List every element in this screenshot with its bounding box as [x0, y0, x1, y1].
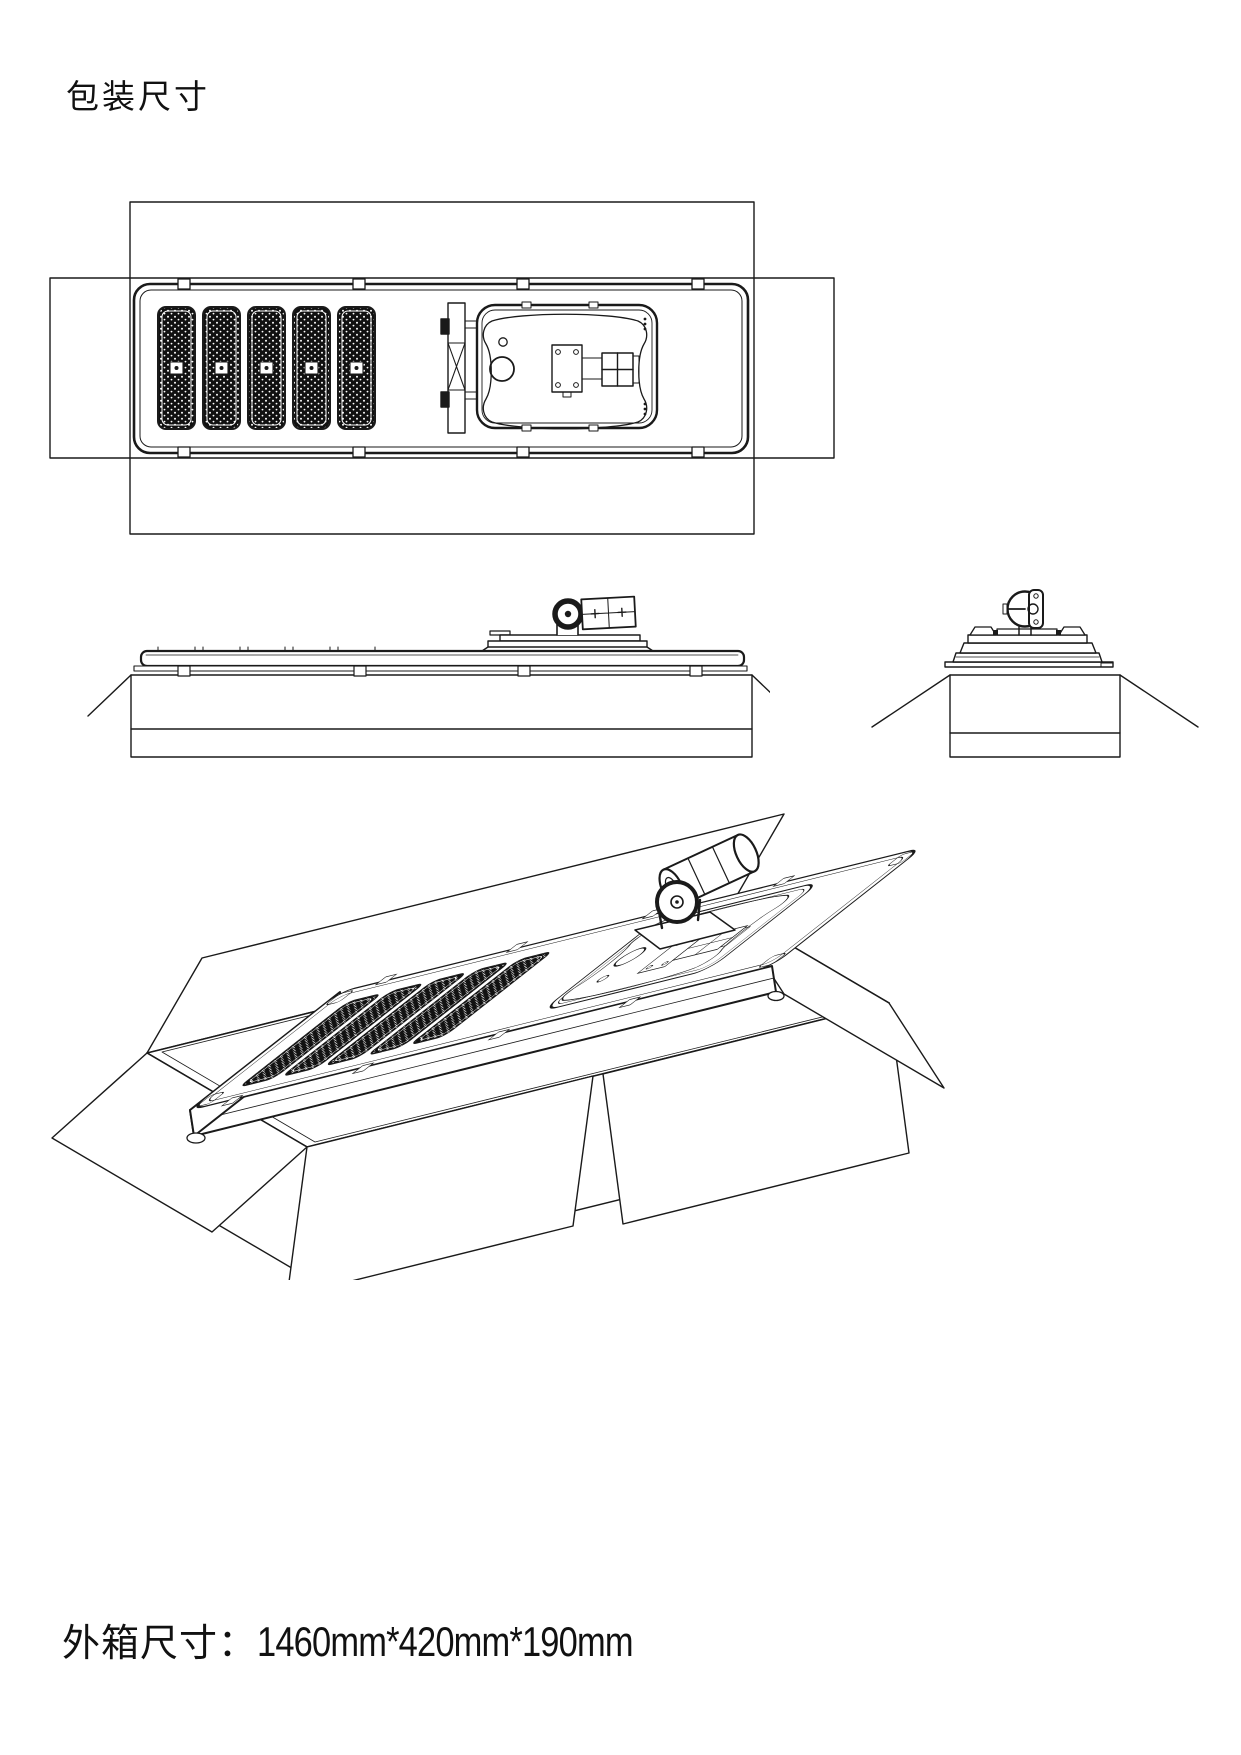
lamp-side-profile — [134, 647, 747, 676]
solar-panel — [158, 307, 195, 429]
solar-panel — [338, 307, 375, 429]
bracket-grid-plate — [581, 597, 635, 630]
solar-panel — [248, 307, 285, 429]
mount-bracket-side — [482, 597, 653, 651]
isometric-drawing — [50, 810, 950, 1280]
solar-panel — [293, 307, 330, 429]
end-view-drawing — [845, 575, 1215, 775]
lamp-end-profile — [945, 627, 1113, 667]
solar-panel — [203, 307, 240, 429]
side-view-end — [845, 575, 1215, 775]
isometric-view — [50, 810, 950, 1280]
carton-end — [872, 675, 1198, 757]
pole-clamp-side — [555, 601, 581, 627]
open-flap-left — [872, 675, 950, 727]
page-title: 包装尺寸 — [66, 70, 210, 118]
open-flap-left — [88, 675, 131, 716]
dimension-label: 外箱尺寸： — [62, 1623, 257, 1665]
pole-bracket-grid — [602, 353, 639, 386]
corner-foot — [187, 1133, 205, 1143]
corner-foot — [768, 992, 784, 1001]
open-flap-right — [1120, 675, 1198, 727]
carton-side — [88, 675, 770, 757]
mount-bracket — [477, 302, 657, 431]
page: 包装尺寸 — [0, 0, 1241, 1755]
lamp-top-face — [134, 279, 748, 457]
solar-panels — [158, 307, 375, 429]
outer-box-dimensions: 外箱尺寸：1460mm*420mm*190mm — [62, 1612, 715, 1667]
top-view-drawing — [40, 195, 850, 545]
dimension-value: 1460mm*420mm*190mm — [257, 1618, 633, 1666]
center-plate — [552, 345, 582, 392]
side-view-drawing — [80, 585, 770, 770]
open-flap-right — [752, 675, 770, 716]
side-view-long — [80, 585, 770, 770]
pole-clamp-end — [1003, 590, 1043, 635]
top-view — [40, 195, 850, 545]
